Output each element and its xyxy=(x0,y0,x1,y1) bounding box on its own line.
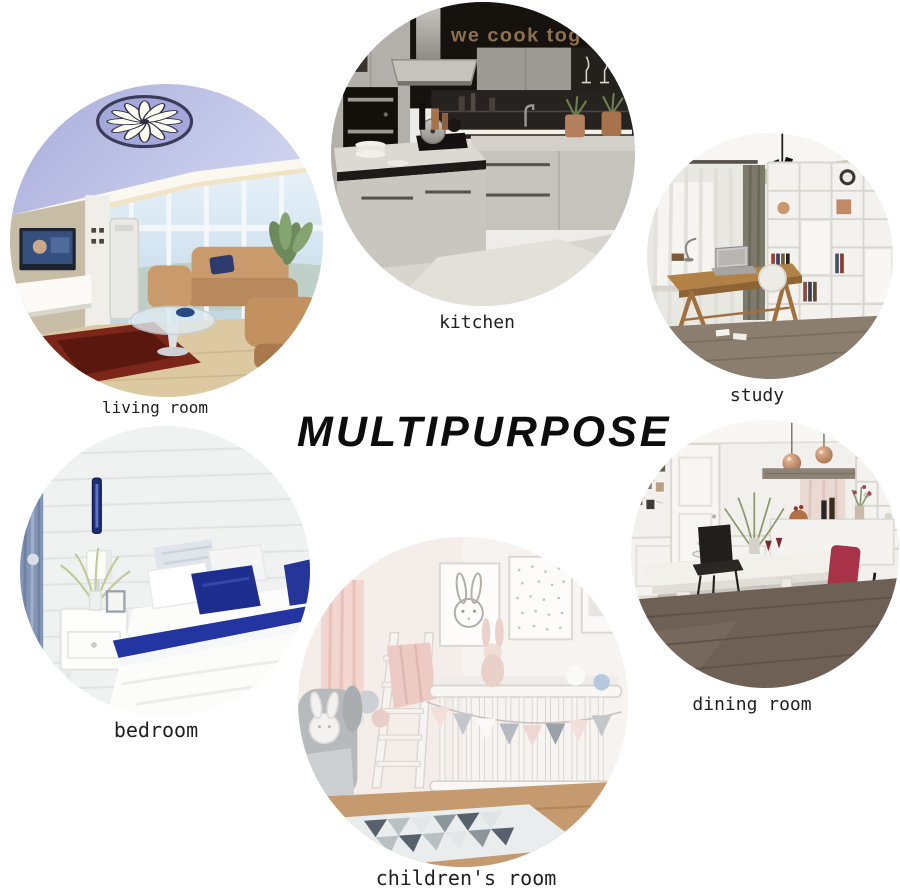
bedroom-label: bedroom xyxy=(114,718,198,742)
product-collage: living room we cook tog xyxy=(0,0,900,891)
dining-room-photo xyxy=(631,420,899,688)
childrens-room-label: children's room xyxy=(376,866,557,890)
bedroom-photo xyxy=(20,426,310,716)
plush-toy xyxy=(565,666,585,686)
living-room-photo xyxy=(10,84,323,397)
armchair xyxy=(298,686,362,798)
childrens-room-scene xyxy=(298,537,628,867)
study-label: study xyxy=(730,385,784,406)
kitchen-photo: we cook tog xyxy=(331,2,635,306)
tv xyxy=(19,228,75,270)
photo-frame xyxy=(107,591,124,611)
window xyxy=(647,160,758,330)
kitchen-scene: we cook tog xyxy=(331,2,635,306)
kitchen-wall-sign: we cook tog xyxy=(450,25,582,47)
dining-room-label: dining room xyxy=(692,694,811,715)
living-room-label: living room xyxy=(102,398,208,417)
collage-title: MULTIPURPOSE xyxy=(297,408,671,457)
study-scene xyxy=(647,133,893,379)
dots-poster xyxy=(509,557,572,640)
kitchen-label: kitchen xyxy=(439,312,515,333)
floor-ac-unit xyxy=(110,219,138,319)
childrens-room-photo xyxy=(298,537,628,867)
plush-toy xyxy=(593,674,610,691)
dining-room-scene xyxy=(631,420,899,688)
study-photo xyxy=(647,133,893,379)
pompom xyxy=(371,709,389,727)
curtain xyxy=(743,165,765,320)
chair xyxy=(759,265,786,292)
bookshelf xyxy=(768,163,893,333)
curtain xyxy=(20,464,43,658)
living-room-scene xyxy=(10,84,323,397)
bunny-poster xyxy=(440,563,499,646)
bedroom-scene xyxy=(20,426,310,716)
